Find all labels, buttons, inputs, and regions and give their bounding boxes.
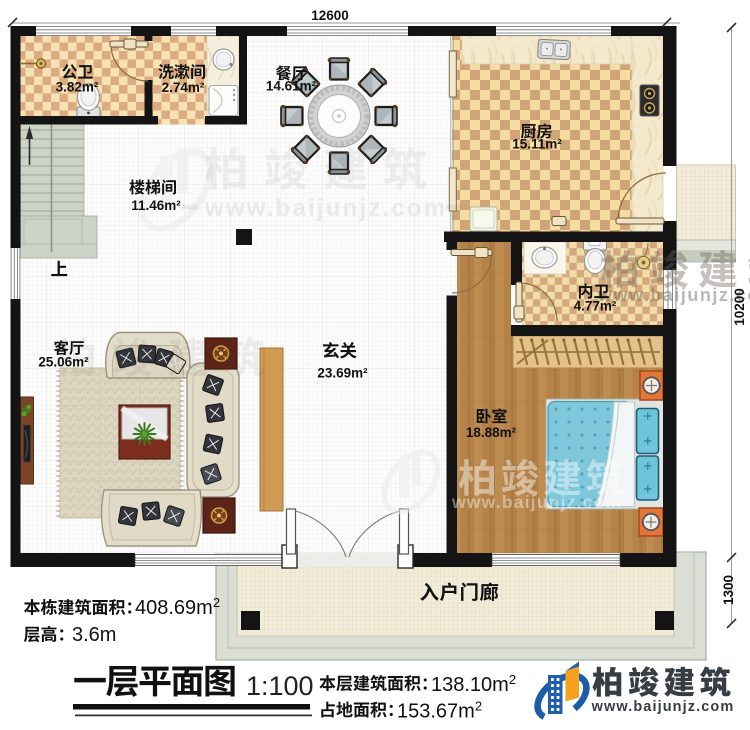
svg-text:1300: 1300 — [721, 575, 736, 605]
svg-text:25.06m²: 25.06m² — [38, 355, 89, 370]
svg-text:www.baijunjz.com: www.baijunjz.com — [591, 699, 735, 715]
svg-text:11.46m²: 11.46m² — [131, 198, 181, 213]
svg-text:408.69m2: 408.69m2 — [135, 595, 220, 619]
svg-text:3.6m: 3.6m — [72, 624, 116, 646]
svg-text:18.88m²: 18.88m² — [466, 425, 517, 440]
svg-text:4.77m²: 4.77m² — [574, 299, 617, 314]
svg-text:www.baijunjz.com: www.baijunjz.com — [451, 492, 622, 512]
svg-text:15.11m²: 15.11m² — [512, 137, 562, 152]
svg-text:23.69m²: 23.69m² — [317, 366, 368, 381]
svg-text:3.82m²: 3.82m² — [56, 80, 99, 95]
svg-text:2.74m²: 2.74m² — [162, 80, 205, 95]
svg-text:138.10m2: 138.10m2 — [431, 672, 516, 696]
svg-text:14.61m²: 14.61m² — [266, 79, 317, 94]
svg-text:153.67m2: 153.67m2 — [397, 699, 482, 723]
svg-text:12600: 12600 — [311, 8, 349, 23]
svg-text:www.baijunjz.com: www.baijunjz.com — [204, 195, 447, 222]
svg-text:10200: 10200 — [732, 288, 747, 326]
svg-text:1:100: 1:100 — [246, 671, 314, 701]
svg-text:www.baijunjz.co: www.baijunjz.co — [597, 285, 750, 305]
